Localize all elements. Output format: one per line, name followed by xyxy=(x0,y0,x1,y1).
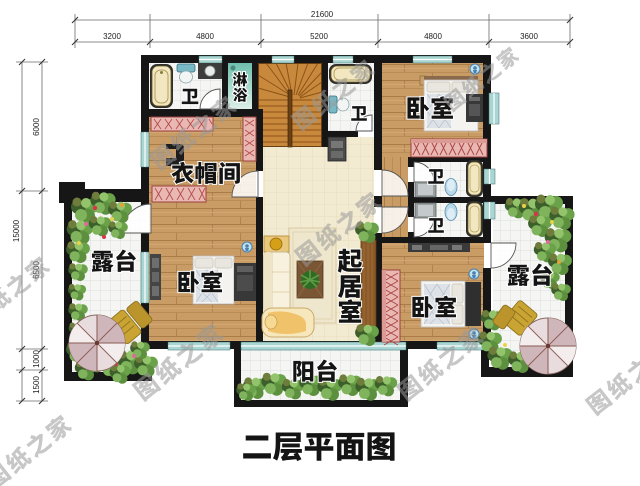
svg-text:3200: 3200 xyxy=(103,32,121,41)
svg-text:1500: 1500 xyxy=(32,376,41,394)
svg-text:1000: 1000 xyxy=(32,350,41,368)
svg-text:3600: 3600 xyxy=(520,32,538,41)
svg-text:5200: 5200 xyxy=(310,32,328,41)
svg-text:4800: 4800 xyxy=(196,32,214,41)
svg-text:4800: 4800 xyxy=(424,32,442,41)
svg-text:21600: 21600 xyxy=(311,10,334,19)
svg-text:15000: 15000 xyxy=(12,219,21,242)
svg-text:6000: 6000 xyxy=(32,118,41,136)
